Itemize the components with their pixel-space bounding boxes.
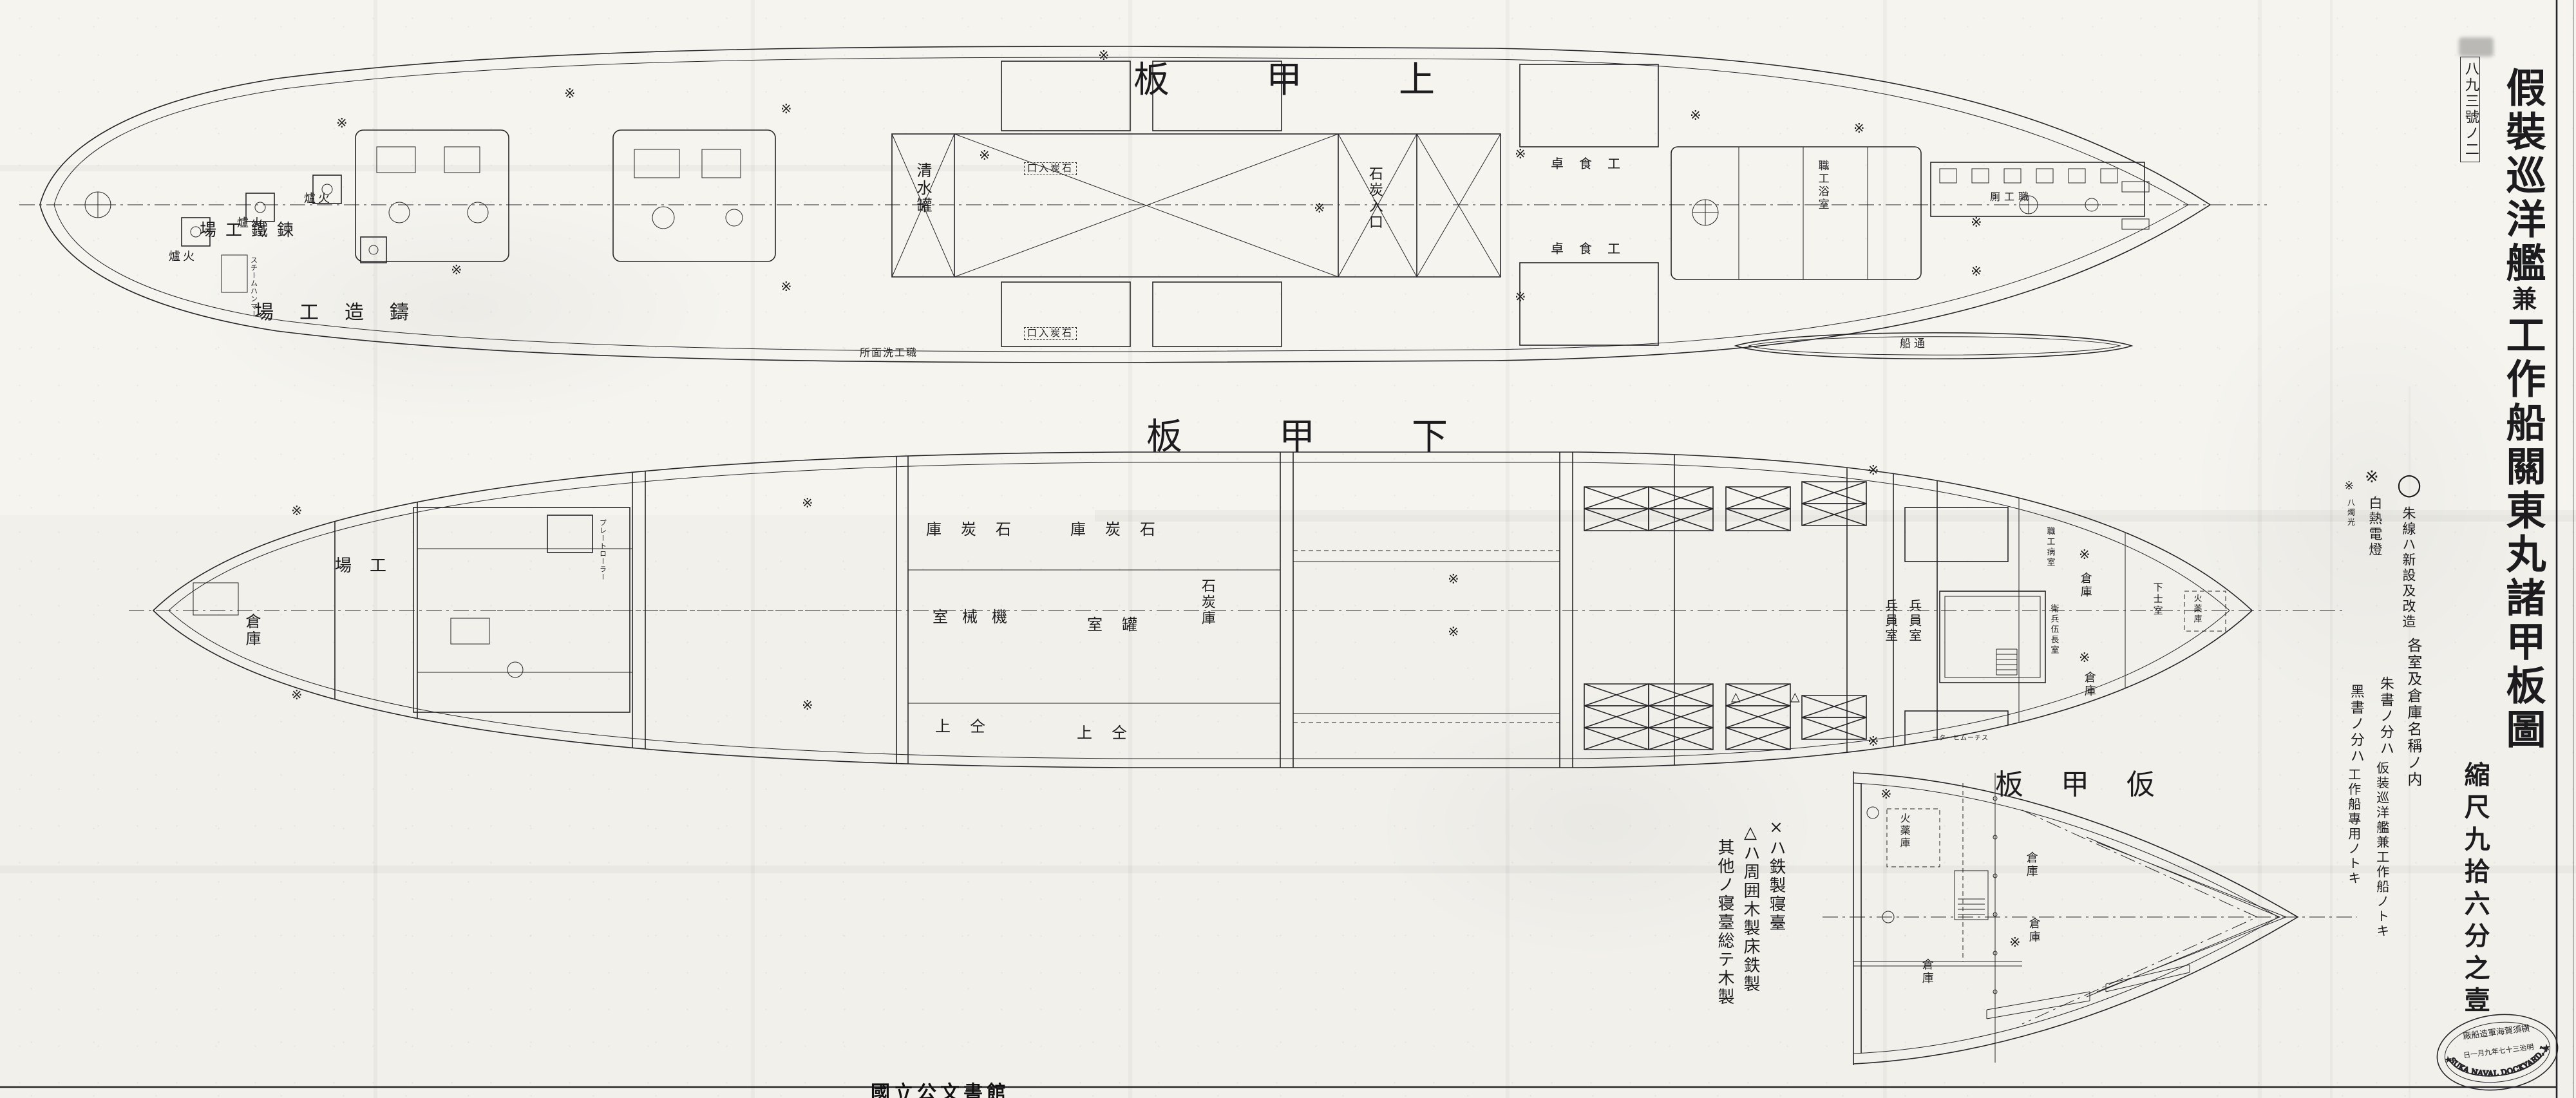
legend-star-note: 白熱電燈 — [2367, 496, 2382, 558]
svg-text:※: ※ — [1098, 48, 1110, 63]
room-forge-2: 火爐 — [237, 218, 265, 230]
deck-plan-linework: ※ ※ ※ ※ ※ ※ ※ ※ ※ ※ ※ ※ ※ ※ ※ ※ ※ ※ ※ ※ … — [0, 0, 2576, 1098]
svg-text:※: ※ — [2079, 547, 2090, 562]
bednote-x: ×ハ鉄製寝臺 — [1767, 818, 1785, 932]
room-coal-entry-center: 石炭入口 — [1367, 166, 1381, 231]
svg-text:※: ※ — [451, 262, 462, 278]
fore-store-1: 倉庫 — [2025, 851, 2037, 878]
label-steam-heater: スチームヒーター — [1932, 735, 1989, 742]
title-joiner: 兼 — [2508, 286, 2537, 314]
blueprint-sheet: ※ ※ ※ ※ ※ ※ ※ ※ ※ ※ ※ ※ ※ ※ ※ ※ ※ ※ ※ ※ … — [0, 0, 2576, 1098]
legend-circle-symbol: ◯ — [2397, 474, 2421, 497]
room-petty-officer: 下士室 — [2152, 582, 2163, 617]
svg-text:※: ※ — [781, 279, 792, 294]
room-workers-sickbay: 職工病室 — [2045, 527, 2054, 568]
legend-circle-note: 朱線ハ新設及改造 — [2401, 506, 2415, 630]
svg-text:※: ※ — [1448, 571, 1459, 587]
fore-store-2: 倉庫 — [2027, 917, 2040, 944]
machine-steam-hammer: スチームハンマー — [250, 256, 257, 318]
colorkey-black-label: 黑書ノ分ハ — [2348, 684, 2363, 764]
svg-text:※: ※ — [979, 147, 990, 163]
svg-text:※: ※ — [2009, 934, 2021, 950]
upper-deck-title: 上甲板 — [1133, 62, 1531, 99]
title-main: 假裝巡洋艦 — [2499, 67, 2546, 286]
room-foundry-shop: 鑄造工場 — [254, 303, 435, 323]
legend-star-symbol: ※ — [2365, 469, 2379, 486]
bednote-triangle: △ハ周囲木製床鉄製 — [1741, 823, 1759, 994]
svg-text:※: ※ — [1868, 462, 1879, 478]
room-engine-room: 機械室 — [933, 609, 1021, 625]
room-store-bow-1: 倉庫 — [2079, 572, 2091, 599]
room-workers-bath: 職工浴室 — [1816, 160, 1828, 211]
bednote-other: 其他ノ寝臺総テ木製 — [1716, 838, 1733, 1007]
colorkey-red-label: 朱書ノ分ハ — [2378, 676, 2392, 757]
svg-text:※: ※ — [1971, 263, 1982, 279]
svg-text:△: △ — [1731, 690, 1741, 704]
svg-text:※: ※ — [1690, 108, 1701, 123]
room-workers-wc: 職工厠 — [1990, 192, 2032, 203]
room-coal-bunker-3: 石炭庫 — [1199, 578, 1214, 627]
ink-smudge — [2459, 37, 2494, 57]
room-crew-2: 兵員室 — [1908, 599, 1921, 643]
svg-text:※: ※ — [781, 101, 792, 117]
drawing-ref-number: 八九三號ノ二 — [2460, 57, 2480, 162]
svg-text:※: ※ — [1880, 786, 1892, 802]
room-coal-bunker-1: 石炭庫 — [926, 522, 1030, 538]
room-coal-bunker-2: 石炭庫 — [1070, 522, 1175, 538]
svg-text:※: ※ — [1314, 200, 1325, 216]
svg-text:※: ※ — [802, 697, 813, 713]
svg-text:※: ※ — [336, 115, 348, 131]
room-coal-entry-bottom: 石炭入口 — [1024, 327, 1077, 340]
machine-plate-roller: プレートローラー — [599, 519, 606, 581]
svg-text:※: ※ — [2079, 650, 2090, 665]
svg-text:※: ※ — [1868, 734, 1879, 749]
title-rest: 工作船關東丸諸甲板圖 — [2499, 314, 2546, 752]
svg-text:※: ※ — [564, 86, 576, 101]
machine-house-a — [355, 130, 509, 261]
drawing-title: 假裝巡洋艦兼工作船關東丸諸甲板圖 — [2501, 67, 2543, 752]
room-mess-table-top: 工食卓 — [1551, 157, 1636, 171]
room-forge-3: 火爐 — [304, 193, 332, 205]
fore-magazine: 火薬庫 — [1899, 813, 1909, 849]
room-workers-washstand: 職工洗面所 — [860, 348, 918, 359]
archive-mark: 國立公文書館 — [871, 1083, 1010, 1098]
lavatory-house — [1931, 162, 2145, 216]
colorkey-black-case: 工作船專用ノトキ — [2347, 768, 2360, 886]
room-forge-1: 火爐 — [169, 251, 197, 263]
paper-tone — [0, 515, 2576, 1098]
windlass — [2020, 182, 2149, 229]
lower-deck-title: 下甲板 — [1146, 419, 1544, 456]
colorkey-heading: 各室及倉庫名稱ノ内 — [2405, 638, 2420, 788]
room-boiler-room: 罐室 — [1087, 617, 1157, 633]
room-crew-1: 兵員室 — [1884, 599, 1897, 643]
room-ditto-2: 仝上 — [1077, 725, 1146, 741]
fore-deck-title: 仮甲板 — [1995, 770, 2192, 800]
svg-text:※: ※ — [291, 503, 303, 518]
svg-text:※: ※ — [1515, 146, 1526, 162]
room-stern-storehouse: 倉庫 — [243, 613, 260, 648]
legend-small-star-note: 八燭光 — [2347, 498, 2354, 527]
label-boat: 通船 — [1900, 339, 1928, 350]
ships-boat — [1736, 333, 2132, 359]
room-workshop: 工場 — [335, 558, 404, 575]
room-ditto-1: 仝上 — [935, 719, 1005, 735]
svg-text:※: ※ — [1448, 624, 1459, 639]
colorkey-red-case: 仮装巡洋艦兼工作船ノトキ — [2375, 761, 2389, 939]
svg-text:※: ※ — [1971, 214, 1982, 230]
room-lower-magazine: 火薬庫 — [2192, 594, 2201, 625]
legend-small-star-symbol: ※ — [2344, 480, 2354, 493]
fore-store-3: 倉庫 — [1920, 958, 1933, 985]
scale-note: 縮尺九拾六分之壹 — [2461, 761, 2488, 1019]
svg-text:※: ※ — [291, 687, 303, 703]
deck-gratings — [1001, 61, 1658, 346]
room-mess-table-bottom: 工食卓 — [1551, 242, 1636, 256]
svg-text:※: ※ — [1515, 289, 1526, 305]
room-guard-corporal: 衛兵伍長室 — [2049, 604, 2058, 656]
room-fresh-water-tank: 清水罐 — [914, 162, 931, 214]
steam-hammer-machine — [222, 255, 247, 292]
room-store-bow-2: 倉庫 — [2083, 671, 2095, 698]
svg-text:△: △ — [1790, 690, 1800, 704]
room-coal-entry-top: 石炭入口 — [1024, 162, 1077, 175]
svg-text:※: ※ — [1853, 120, 1865, 136]
svg-text:※: ※ — [802, 495, 813, 511]
